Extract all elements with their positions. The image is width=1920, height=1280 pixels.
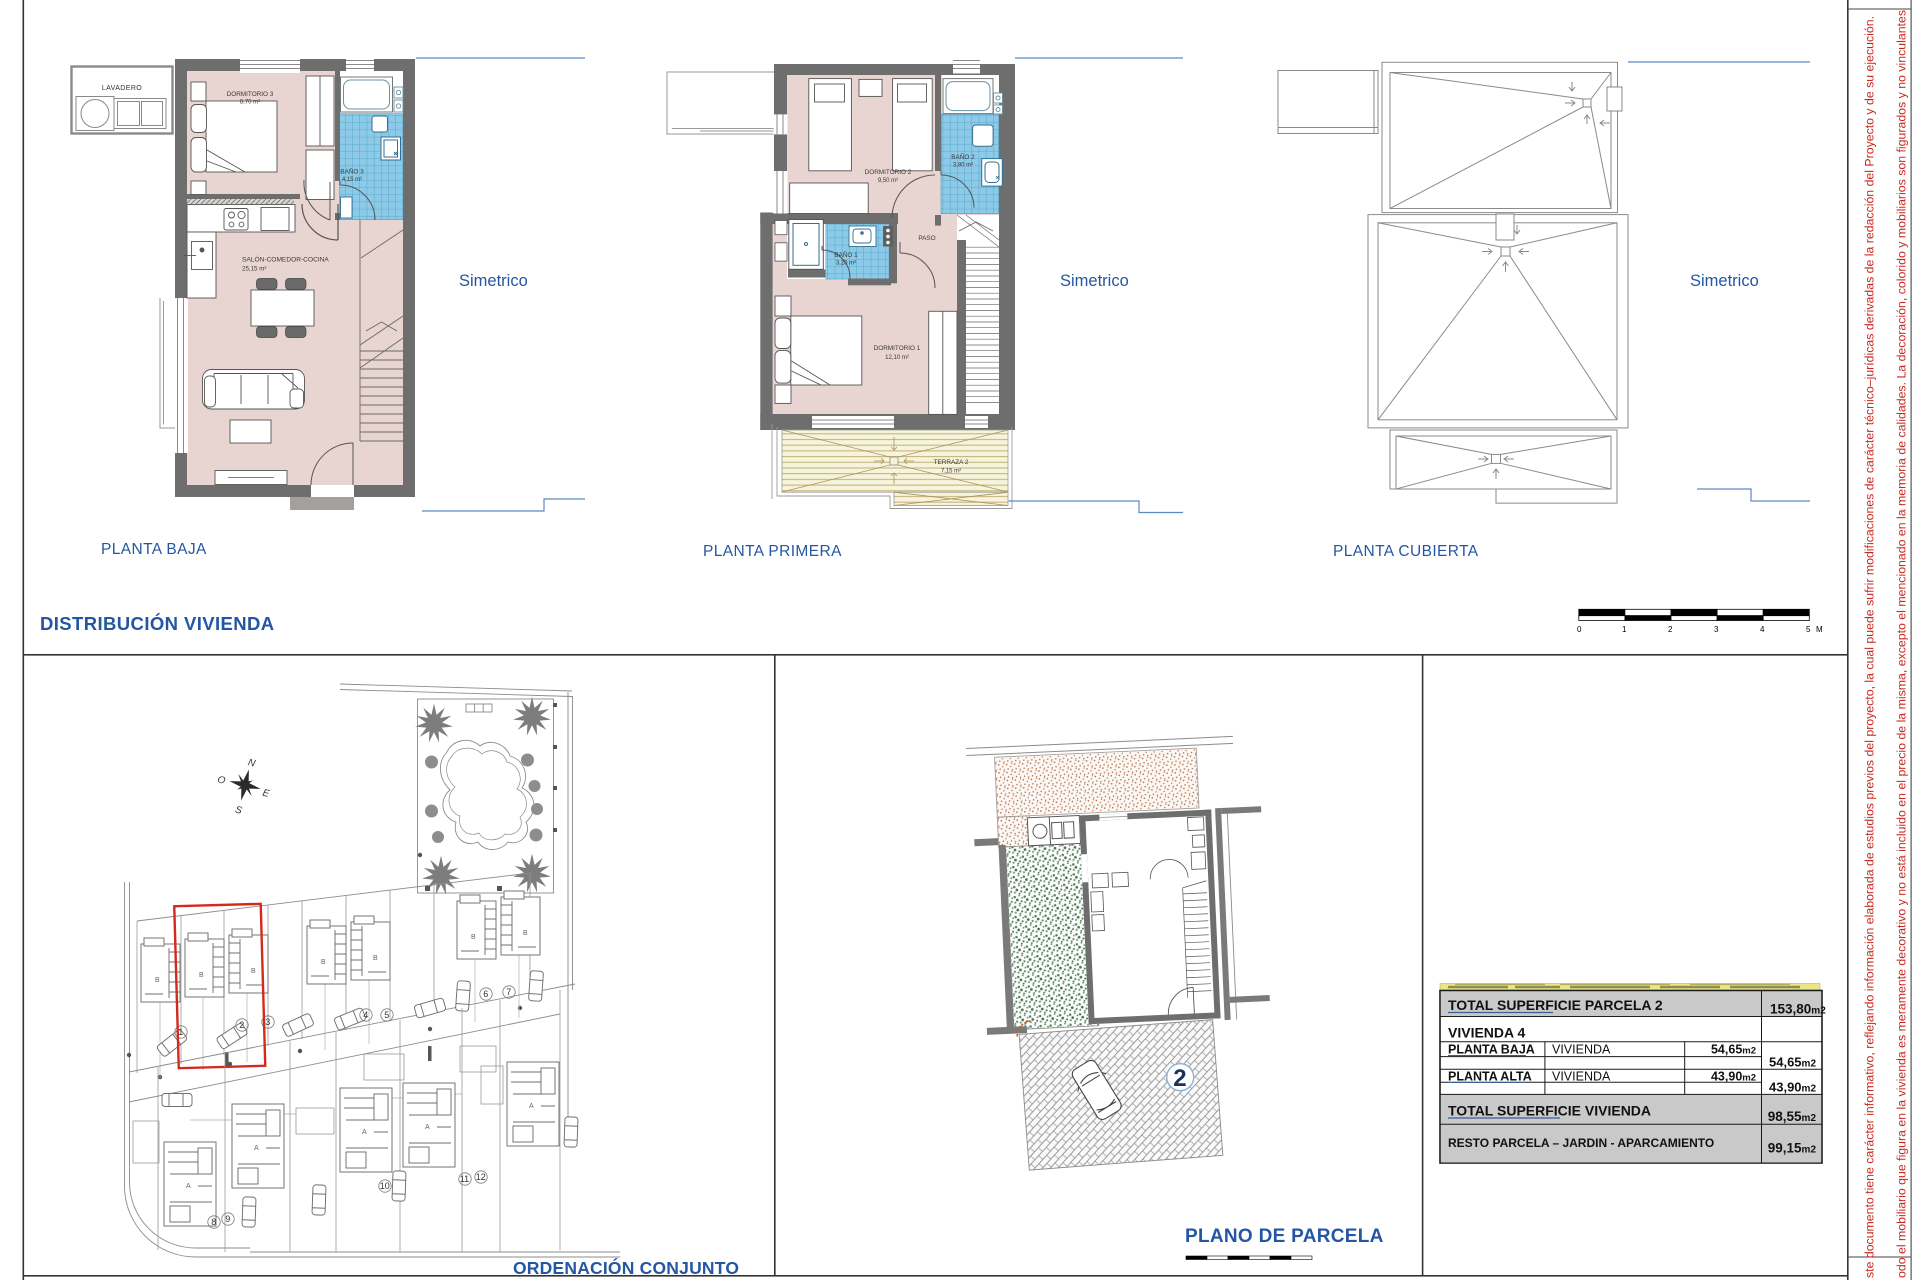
svg-text:A: A [186, 1183, 191, 1190]
svg-text:Simetrico: Simetrico [1060, 272, 1129, 290]
svg-text:VIVIENDA 4: VIVIENDA 4 [1448, 1025, 1525, 1041]
svg-text:BAÑO 2: BAÑO 2 [951, 152, 975, 161]
svg-text:DORMITORIO 3: DORMITORIO 3 [227, 91, 274, 98]
svg-text:B: B [373, 955, 378, 962]
svg-text:4: 4 [363, 1010, 368, 1020]
svg-text:A: A [254, 1145, 259, 1152]
svg-text:9: 9 [225, 1214, 230, 1224]
svg-text:5: 5 [1806, 625, 1811, 634]
svg-text:TERRAZA 2: TERRAZA 2 [934, 459, 969, 466]
svg-text:B: B [199, 972, 204, 979]
svg-text:3,80 m²: 3,80 m² [953, 163, 973, 169]
svg-text:odo el mobiliario que figura e: odo el mobiliario que figura en la vivie… [1895, 10, 1909, 1278]
svg-text:DISTRIBUCIÓN VIVIENDA: DISTRIBUCIÓN VIVIENDA [40, 613, 275, 634]
svg-text:25,15 m²: 25,15 m² [242, 266, 266, 273]
svg-text:3,20 m²: 3,20 m² [836, 261, 856, 267]
svg-text:11: 11 [460, 1174, 469, 1184]
svg-text:12: 12 [476, 1172, 486, 1182]
svg-text:N: N [247, 757, 257, 770]
svg-text:PLANTA PRIMERA: PLANTA PRIMERA [703, 543, 842, 560]
svg-text:B: B [523, 930, 528, 937]
svg-text:VIVIENDA: VIVIENDA [1552, 1043, 1611, 1057]
svg-text:O: O [216, 774, 226, 787]
svg-text:PASO: PASO [918, 235, 935, 242]
svg-text:PLANO DE PARCELA: PLANO DE PARCELA [1185, 1226, 1384, 1247]
svg-text:B: B [471, 934, 476, 941]
svg-text:B: B [251, 968, 256, 975]
svg-text:TOTAL SUPERFICIE PARCELA 2: TOTAL SUPERFICIE PARCELA 2 [1448, 997, 1663, 1013]
svg-text:54,65m2: 54,65m2 [1711, 1043, 1756, 1057]
svg-text:4,15 m²: 4,15 m² [342, 177, 362, 183]
svg-text:SALÓN-COMEDOR-COCINA: SALÓN-COMEDOR-COCINA [242, 255, 329, 264]
svg-text:A: A [425, 1124, 430, 1131]
svg-text:43,90m2: 43,90m2 [1711, 1070, 1756, 1084]
svg-text:LAVADERO: LAVADERO [102, 85, 142, 92]
svg-text:VIVIENDA: VIVIENDA [1552, 1070, 1611, 1084]
svg-text:DORMITORIO 2: DORMITORIO 2 [865, 169, 912, 176]
svg-text:8: 8 [211, 1217, 216, 1227]
svg-text:PLANTA BAJA: PLANTA BAJA [101, 541, 207, 558]
svg-text:12,10 m²: 12,10 m² [885, 355, 909, 361]
svg-text:0: 0 [1577, 625, 1582, 634]
svg-text:M: M [1816, 625, 1823, 634]
svg-text:DORMITORIO 1: DORMITORIO 1 [874, 345, 921, 352]
svg-text:3: 3 [265, 1017, 270, 1027]
svg-text:RESTO PARCELA – JARDIN - APARC: RESTO PARCELA – JARDIN - APARCAMIENTO [1448, 1136, 1714, 1150]
svg-text:PLANTA ALTA: PLANTA ALTA [1448, 1070, 1532, 1084]
svg-text:PLANTA BAJA: PLANTA BAJA [1448, 1043, 1535, 1057]
svg-text:8,70 m²: 8,70 m² [240, 100, 260, 106]
svg-text:E: E [261, 788, 270, 800]
svg-text:Simetrico: Simetrico [1690, 272, 1759, 290]
svg-text:B: B [155, 977, 160, 984]
svg-text:S: S [234, 805, 243, 817]
svg-text:BAÑO 1: BAÑO 1 [834, 250, 858, 259]
svg-text:B: B [321, 959, 326, 966]
svg-text:5: 5 [384, 1010, 389, 1020]
svg-text:Simetrico: Simetrico [459, 272, 528, 290]
svg-text:1: 1 [1622, 625, 1627, 634]
svg-text:4: 4 [1760, 625, 1765, 634]
svg-text:2: 2 [239, 1020, 244, 1030]
svg-text:6: 6 [483, 989, 488, 999]
svg-text:9,50 m²: 9,50 m² [878, 178, 898, 184]
svg-text:ORDENACIÓN CONJUNTO: ORDENACIÓN CONJUNTO [513, 1257, 739, 1278]
svg-text:7: 7 [506, 987, 511, 997]
svg-text:10: 10 [380, 1181, 390, 1191]
svg-text:2: 2 [1668, 625, 1673, 634]
svg-text:3: 3 [1714, 625, 1719, 634]
svg-text:ste documento tiene carácter i: ste documento tiene carácter informativo… [1863, 16, 1877, 1278]
svg-text:A: A [529, 1103, 534, 1110]
svg-text:BAÑO 3: BAÑO 3 [340, 167, 364, 176]
svg-text:7,15 m²: 7,15 m² [941, 469, 961, 475]
svg-text:PLANTA CUBIERTA: PLANTA CUBIERTA [1333, 543, 1479, 560]
svg-text:TOTAL SUPERFICIE VIVIENDA: TOTAL SUPERFICIE VIVIENDA [1448, 1103, 1651, 1119]
svg-text:2: 2 [1173, 1065, 1186, 1092]
svg-text:A: A [362, 1129, 367, 1136]
